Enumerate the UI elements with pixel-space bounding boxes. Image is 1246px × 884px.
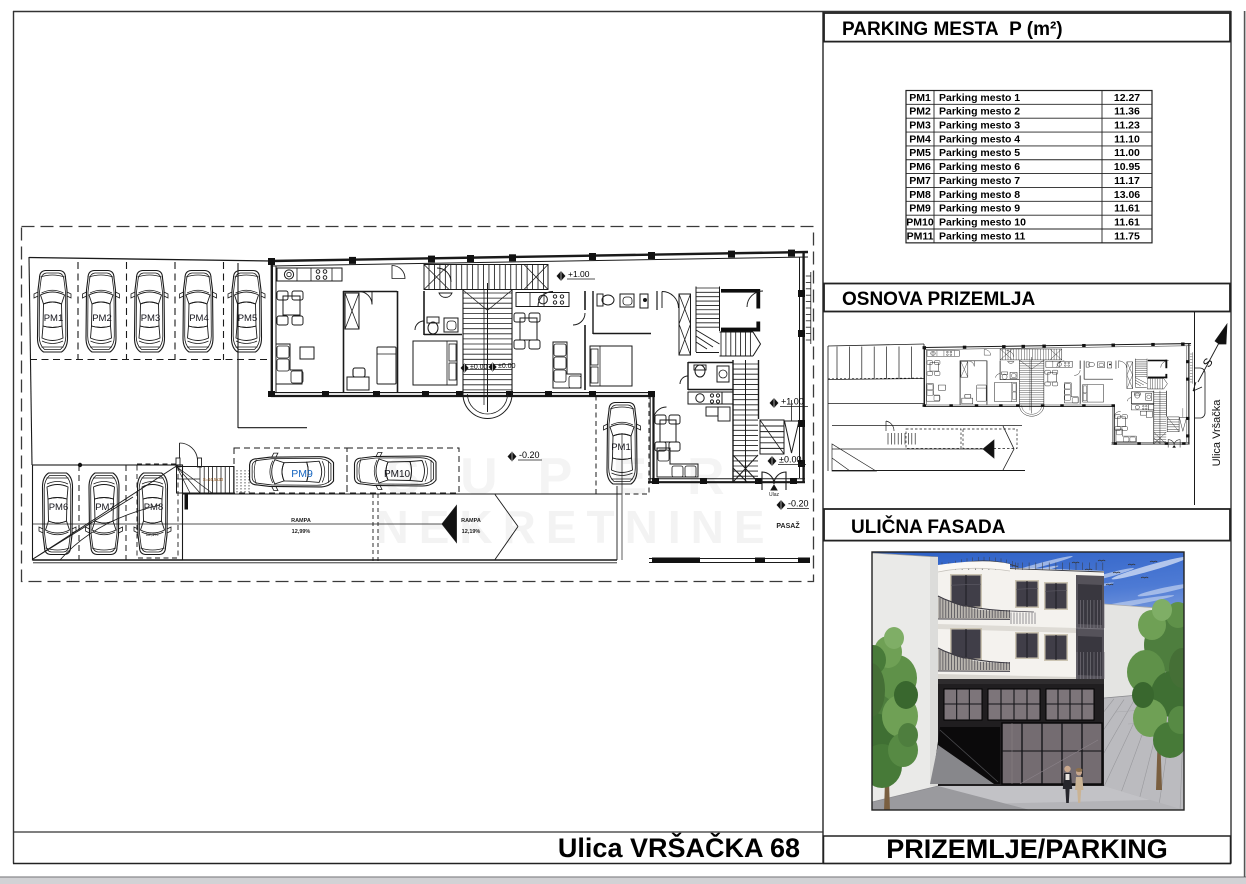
svg-text:PM9: PM9 [291,468,313,480]
svg-text:13.06: 13.06 [1114,189,1140,201]
svg-text:PARKING MESTA P (m²): PARKING MESTA P (m²) [842,19,1063,40]
svg-text:PM6: PM6 [909,161,931,173]
svg-text:PM8: PM8 [909,189,931,201]
svg-text:Parking mesto 8: Parking mesto 8 [939,189,1020,201]
svg-text:PM4: PM4 [909,133,931,145]
svg-text:Parking mesto 4: Parking mesto 4 [939,133,1020,145]
svg-text:OSNOVA PRIZEMLJA: OSNOVA PRIZEMLJA [842,289,1035,310]
svg-text:PM5: PM5 [909,147,931,159]
svg-text:12,19%: 12,19% [462,529,481,535]
svg-text:12,99%: 12,99% [292,529,311,535]
svg-text:±0.00: ±0.00 [498,363,516,370]
svg-text:RAMPA: RAMPA [461,518,481,524]
svg-text:PM4: PM4 [189,313,209,324]
svg-text:PM2: PM2 [909,106,931,118]
svg-text:PM7: PM7 [909,175,931,187]
svg-text:11.23: 11.23 [1114,120,1140,132]
svg-text:Parking mesto 10: Parking mesto 10 [939,216,1026,228]
svg-text:11.10: 11.10 [1114,133,1140,145]
svg-text:PM10: PM10 [384,469,411,480]
svg-text:PM11: PM11 [907,230,934,242]
svg-text:11.61: 11.61 [1114,216,1140,228]
svg-text:Parking mesto 6: Parking mesto 6 [939,161,1020,173]
svg-text:11.17: 11.17 [1114,175,1140,187]
svg-text:Parking mesto 2: Parking mesto 2 [939,106,1020,118]
svg-text:PM2: PM2 [92,313,112,324]
svg-text:12,1%: 12,1% [146,532,159,537]
svg-text:+1.00: +1.00 [781,397,804,407]
svg-text:S=16,5x30: S=16,5x30 [203,477,224,482]
svg-text:SUPER: SUPER [385,448,764,506]
svg-text:PM9: PM9 [909,203,931,215]
svg-text:10.95: 10.95 [1114,161,1140,173]
svg-text:NEKRETNINE: NEKRETNINE [375,501,774,553]
svg-text:PM10: PM10 [906,216,934,228]
svg-text:Parking mesto 11: Parking mesto 11 [939,230,1026,242]
svg-text:PRIZEMLJE/PARKING: PRIZEMLJE/PARKING [886,834,1168,864]
svg-text:PM3: PM3 [141,313,161,324]
svg-text:PM3: PM3 [909,120,931,132]
svg-text:Parking mesto 5: Parking mesto 5 [939,147,1020,159]
svg-text:Parking mesto 3: Parking mesto 3 [939,120,1020,132]
svg-text:±0.00: ±0.00 [470,364,488,371]
svg-text:PM5: PM5 [238,313,258,324]
svg-text:ULIČNA FASADA: ULIČNA FASADA [851,516,1006,538]
svg-text:Parking mesto 9: Parking mesto 9 [939,203,1020,215]
svg-text:PASAŽ: PASAŽ [776,521,800,530]
svg-text:Ulaz: Ulaz [769,492,780,498]
svg-text:11.00: 11.00 [1114,147,1140,159]
svg-text:Parking mesto 7: Parking mesto 7 [939,175,1020,187]
svg-text:PM8: PM8 [144,502,164,513]
svg-text:Ulica Vršačka: Ulica Vršačka [1211,399,1223,467]
svg-text:11.36: 11.36 [1114,106,1140,118]
svg-text:-0.20: -0.20 [519,450,540,460]
svg-text:12.27: 12.27 [1114,92,1140,104]
svg-text:±0.00: ±0.00 [779,455,801,465]
svg-text:Ulica VRŠAČKA 68: Ulica VRŠAČKA 68 [558,832,800,863]
svg-text:+1.00: +1.00 [568,269,590,279]
svg-text:11.75: 11.75 [1114,230,1140,242]
svg-text:PM1: PM1 [44,313,64,324]
svg-text:RAMPA: RAMPA [291,518,311,524]
svg-text:PM1: PM1 [909,92,931,104]
svg-text:PM1: PM1 [611,442,631,453]
svg-text:-0.20: -0.20 [788,499,809,509]
svg-text:11.61: 11.61 [1114,203,1140,215]
svg-text:PM6: PM6 [49,502,69,513]
svg-text:Parking mesto 1: Parking mesto 1 [939,92,1020,104]
